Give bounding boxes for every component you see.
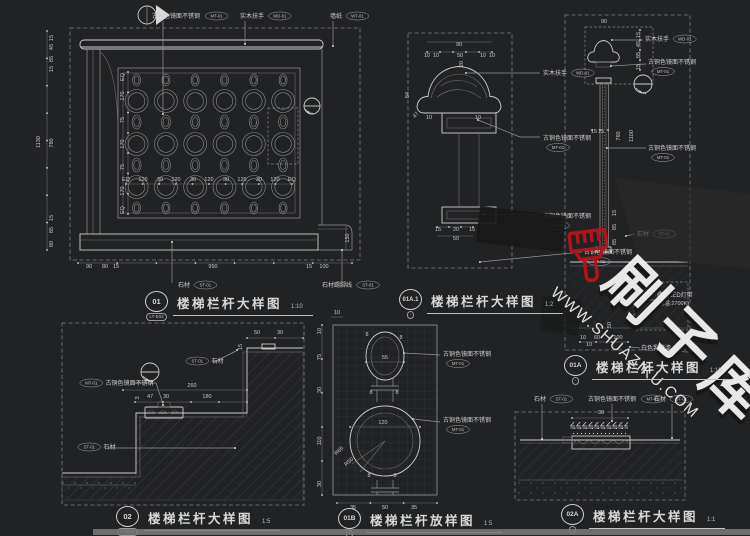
- dim-text: 10: [580, 335, 586, 341]
- material-label: 实木扶手: [240, 12, 264, 20]
- tick: [627, 341, 629, 343]
- title-block-01A1: 01A.1 - 楼梯栏杆大样图 1:2: [399, 289, 563, 319]
- dim-text: 10: [480, 53, 486, 59]
- dim-text: 15: [636, 32, 642, 38]
- tick: [465, 51, 467, 53]
- material-tag-text: MT-01: [452, 427, 465, 432]
- dim-text: 10: [424, 53, 430, 59]
- tick: [452, 51, 454, 53]
- material-tag-text: WT-01: [351, 14, 364, 19]
- dim-text: 85: [49, 56, 55, 62]
- dim-text: 85: [636, 52, 642, 58]
- tick: [365, 361, 367, 363]
- material-tag-text: WD-01: [273, 14, 287, 19]
- dim-text: 10: [334, 310, 340, 316]
- dim-text: 10: [475, 115, 481, 121]
- dim-text: 55: [382, 355, 388, 361]
- detail-marker: [141, 363, 159, 382]
- sheet-code: LT-E02: [146, 313, 166, 321]
- baluster-ornament: [216, 93, 233, 110]
- dim-text: 15: [591, 129, 597, 135]
- drawing-scale: 1:10: [291, 304, 303, 310]
- dim-text: 15: [238, 344, 244, 350]
- dim-text: 30: [317, 481, 323, 487]
- baluster-ornament: [246, 136, 263, 153]
- tick: [46, 194, 48, 196]
- tick: [439, 51, 441, 53]
- baluster-ornament: [187, 93, 204, 110]
- title-block-01: 01 LT-E02 楼梯栏杆大样图 1:10: [145, 291, 313, 321]
- baluster-ornament: [280, 160, 286, 169]
- dim-text: 1100: [629, 130, 635, 142]
- baluster-ornament: [222, 117, 228, 126]
- material-label: 古铜色镜面不锈钢: [106, 379, 154, 387]
- dim-text: 170: [120, 91, 126, 100]
- dim-text: 15: [306, 264, 312, 270]
- tick: [639, 39, 641, 41]
- baluster-ornament: [187, 136, 204, 153]
- baluster-ornament: [281, 204, 286, 212]
- dim-text: 90: [86, 264, 92, 270]
- tick: [134, 401, 136, 403]
- tick: [225, 183, 227, 185]
- dim-text: 30: [157, 177, 163, 183]
- tick: [155, 262, 157, 264]
- baluster-ornament: [158, 93, 175, 110]
- tick: [460, 226, 462, 228]
- tick: [595, 341, 597, 343]
- tick: [351, 262, 353, 264]
- dim-text: 90: [456, 42, 462, 48]
- tick: [46, 85, 48, 87]
- dim-text: 84: [405, 92, 411, 98]
- dim-text: 47: [412, 111, 421, 120]
- baluster-ornament: [275, 136, 292, 153]
- tick: [639, 49, 641, 51]
- tick: [302, 337, 304, 339]
- baluster-ornament: [251, 160, 257, 169]
- baluster-ornament: [251, 76, 256, 84]
- tick: [77, 262, 79, 264]
- tick: [419, 426, 421, 428]
- cad-sheet: 113015458515780158580EQ1707517075170EQEQ…: [0, 0, 750, 536]
- tick: [195, 262, 197, 264]
- dim-text: 75: [120, 164, 126, 170]
- dim-text: 10: [433, 53, 439, 59]
- drawing-title: 楼梯栏杆大样图: [431, 291, 536, 310]
- material-label: 石材踢脚线: [322, 281, 352, 289]
- dim-text: 8: [365, 332, 368, 338]
- tick: [321, 460, 323, 462]
- drawing-scale: 1:5: [484, 521, 492, 527]
- dim-text: 8: [395, 390, 398, 396]
- baluster-ornament: [251, 204, 256, 212]
- tick: [46, 249, 48, 251]
- baluster-ornament: [222, 204, 227, 212]
- dim-text: 30: [190, 177, 196, 183]
- baluster-ornament: [134, 117, 140, 126]
- dim-text: 180: [202, 394, 211, 400]
- tick: [192, 183, 194, 185]
- tick: [336, 502, 338, 504]
- detail-bubble: 02: [116, 506, 139, 527]
- drawing-01-railing-elevation: [47, 5, 360, 283]
- dim-text: 75: [120, 117, 126, 123]
- dim-text: 120: [378, 420, 387, 426]
- dim-text: 75: [317, 354, 323, 360]
- dim-text: 30: [163, 394, 169, 400]
- tick: [122, 389, 124, 391]
- baluster-ornament: [246, 93, 263, 110]
- tick: [46, 140, 48, 142]
- sheet-code: -: [572, 377, 580, 385]
- sheet-code: -: [407, 311, 415, 319]
- material-tag-text: ST-01: [362, 283, 374, 288]
- tick: [175, 183, 177, 185]
- material-tag-text: MT-01: [85, 381, 98, 386]
- dim-text: 20: [459, 61, 465, 67]
- dim-text: 8: [369, 390, 372, 396]
- baluster-ornament: [192, 160, 198, 169]
- material-label: 石材: [212, 357, 224, 365]
- tick: [246, 389, 248, 391]
- material-label: 实木扶手: [543, 69, 567, 77]
- drawing-title: 楼梯栏杆大样图: [177, 293, 282, 312]
- tick: [312, 262, 314, 264]
- dim-text: EQ: [288, 177, 297, 183]
- dim-text: 15: [636, 64, 642, 70]
- tick: [127, 152, 129, 154]
- material-label: 古铜色镜面不锈钢: [152, 12, 200, 20]
- baluster-ornament: [134, 204, 139, 212]
- tick: [274, 337, 276, 339]
- drawing-01B-baluster-loft: [322, 317, 440, 503]
- dim-text: 950: [208, 264, 217, 270]
- dim-text: 10: [426, 115, 432, 121]
- dim-text: 8: [393, 473, 396, 479]
- baluster-ornament: [193, 76, 198, 84]
- tick: [571, 417, 573, 419]
- baluster-ornament: [222, 160, 228, 169]
- tick: [127, 91, 129, 93]
- dim-text: 15: [49, 35, 55, 41]
- dim-text: 45: [636, 41, 642, 47]
- tick: [403, 361, 405, 363]
- material-tag-text: MT-01: [211, 14, 224, 19]
- material-tag-text: MT-01: [657, 155, 670, 160]
- dim-text: 1130: [36, 136, 42, 148]
- dim-text: 100: [319, 264, 328, 270]
- dim-text: 80: [49, 241, 55, 247]
- dim-text: 85: [612, 224, 618, 230]
- dim-text: 15: [49, 66, 55, 72]
- dim-text: 90: [601, 19, 607, 25]
- material-tag-text: ST-01: [556, 397, 568, 402]
- dim-text: 30: [598, 410, 604, 416]
- drawing-canvas: 113015458515780158580EQ1707517075170EQEQ…: [0, 0, 750, 536]
- detail-bubble: 01: [145, 291, 168, 312]
- tick: [639, 29, 641, 31]
- detail-bubble: 01A: [564, 355, 587, 376]
- dim-text: EQ: [120, 72, 126, 81]
- baluster-ornament: [280, 117, 286, 126]
- tick: [246, 401, 248, 403]
- tick: [291, 183, 293, 185]
- material-label: 石材: [104, 443, 116, 451]
- window-edge-band: [93, 529, 750, 535]
- detail-bubble: 02A: [561, 504, 584, 525]
- drawing-02-stair-section: [62, 323, 304, 505]
- dim-text: 760: [616, 131, 622, 140]
- tick: [321, 324, 323, 326]
- dim-text: 85: [612, 239, 618, 245]
- tick: [127, 193, 129, 195]
- tick: [162, 401, 164, 403]
- tick: [579, 341, 581, 343]
- baluster-ornament: [163, 117, 169, 126]
- dim-text: 45: [49, 44, 55, 50]
- tick: [127, 132, 129, 134]
- tick: [208, 183, 210, 185]
- dim-text: 15: [113, 264, 119, 270]
- material-tag-text: WD-01: [678, 37, 692, 42]
- detail-bubble: 01B: [338, 508, 361, 529]
- tick: [142, 183, 144, 185]
- dim-text: 10: [489, 53, 495, 59]
- dim-text: 30: [223, 177, 229, 183]
- dim-text: 50: [254, 330, 260, 336]
- tick: [234, 262, 236, 264]
- tick: [46, 30, 48, 32]
- tick: [127, 71, 129, 73]
- dim-text: 170: [120, 139, 126, 148]
- material-tag-text: ST-01: [192, 359, 204, 364]
- material-tag-text: MT-01: [552, 145, 565, 150]
- dim-text: 30: [317, 387, 323, 393]
- tick: [349, 426, 351, 428]
- baluster-ornament: [275, 93, 292, 110]
- tick: [218, 401, 220, 403]
- drawing-scale: 1:1: [707, 517, 715, 523]
- detail-marker: [304, 98, 320, 114]
- baluster-ornament: [163, 160, 169, 169]
- tick: [403, 502, 405, 504]
- baluster-ornament: [134, 76, 139, 84]
- baluster-ornament: [216, 136, 233, 153]
- tick: [627, 417, 629, 419]
- dim-text: 120: [171, 177, 180, 183]
- drawing-title: 楼梯栏杆大样图: [593, 506, 698, 525]
- dim-text: 120: [270, 177, 279, 183]
- dim-text: 170: [120, 186, 126, 195]
- tick: [46, 222, 48, 224]
- tick: [321, 494, 323, 496]
- dim-text: 10: [586, 342, 592, 348]
- baluster-ornament: [251, 117, 257, 126]
- tick: [127, 213, 129, 215]
- tick: [125, 183, 127, 185]
- tick: [190, 401, 192, 403]
- drawing-scale: 1:5: [262, 519, 270, 525]
- tick: [369, 502, 371, 504]
- dim-text: 15: [612, 210, 618, 216]
- material-label: 古铜色镜面不锈钢: [443, 350, 491, 358]
- tick: [46, 112, 48, 114]
- tick: [607, 129, 609, 131]
- dim-text: 10: [317, 328, 323, 334]
- material-tag-text: MT-01: [452, 361, 465, 366]
- material-label: 古铜色镜面不锈钢: [648, 144, 696, 152]
- baluster-ornament: [163, 204, 168, 212]
- material-label: 石材: [178, 281, 190, 289]
- baluster-ornament: [134, 160, 140, 169]
- material-label: 墙纸: [330, 12, 342, 20]
- dim-text: 50: [457, 53, 463, 59]
- dim-text: 8: [367, 473, 370, 479]
- dim-text: 15: [49, 215, 55, 221]
- dim-text: 120: [138, 177, 147, 183]
- tick: [448, 226, 450, 228]
- drawing-title: 楼梯栏杆大样图: [148, 508, 253, 527]
- dim-text: 30: [256, 177, 262, 183]
- baluster-ornament: [158, 136, 175, 153]
- tick: [158, 183, 160, 185]
- dim-text: EQ: [122, 177, 131, 183]
- tick: [258, 183, 260, 185]
- baluster-ornament: [163, 76, 168, 84]
- dim-text: 20: [453, 227, 459, 233]
- baluster-ornament: [222, 76, 227, 84]
- baluster-ornament: [128, 136, 145, 153]
- drawing-title: 楼梯栏杆大样图: [596, 357, 701, 376]
- tick: [246, 337, 248, 339]
- dim-text: 85: [49, 227, 55, 233]
- tick: [127, 173, 129, 175]
- baluster-ornament: [192, 117, 198, 126]
- dim-text: 260: [187, 383, 196, 389]
- dim-text: 780: [49, 138, 55, 147]
- dim-text: 80: [102, 264, 108, 270]
- drawing-scale: 1:2: [545, 302, 553, 308]
- baluster-ornament: [193, 204, 198, 212]
- material-label: 实木扶手: [645, 35, 669, 43]
- dim-text: 15: [598, 129, 604, 135]
- dim-text: 120: [204, 177, 213, 183]
- material-tag-text: WD-01: [576, 71, 590, 76]
- tick: [639, 59, 641, 61]
- material-label: 古铜色镜面不锈钢: [648, 58, 696, 66]
- dim-text: 3: [135, 396, 141, 399]
- material-tag-text: ST-01: [84, 445, 96, 450]
- tick: [46, 167, 48, 169]
- dim-text: 50: [453, 236, 459, 242]
- dim-text: 8: [399, 335, 402, 341]
- tick: [241, 183, 243, 185]
- drawing-title: 楼梯栏杆放样图: [370, 510, 475, 529]
- dim-text: 15: [435, 227, 441, 233]
- tick: [127, 112, 129, 114]
- material-tag-text: MT-01: [657, 69, 670, 74]
- detail-marker: [634, 75, 652, 94]
- detail-bubble: 01A.1: [399, 289, 422, 310]
- dim-text: 30: [277, 330, 283, 336]
- baluster-ornament: [128, 93, 145, 110]
- tick: [273, 262, 275, 264]
- material-label: 古铜色镜面不锈钢: [543, 134, 591, 142]
- tick: [46, 57, 48, 59]
- tick: [321, 426, 323, 428]
- material-label: 古铜色镜面不锈钢: [443, 416, 491, 424]
- tick: [275, 183, 277, 185]
- dim-text: 150: [345, 233, 351, 242]
- baluster-ornament: [281, 76, 286, 84]
- watermark-smudge: [476, 206, 566, 252]
- material-tag-text: ST-01: [200, 283, 212, 288]
- dim-text: 47: [147, 394, 153, 400]
- dim-text: 120: [237, 177, 246, 183]
- drawing-scale: 1:10: [710, 368, 722, 374]
- tick: [436, 502, 438, 504]
- material-label: 石材: [534, 395, 546, 403]
- drawing-02A-anchor-detail: [515, 404, 685, 500]
- dim-text: 15: [469, 227, 475, 233]
- dim-text: 110: [317, 437, 323, 446]
- title-block-01A: 01A - 楼梯栏杆大样图 1:10: [564, 355, 732, 385]
- material-label: 古铜色镜面不锈钢: [588, 395, 636, 403]
- dim-text: EQ: [120, 205, 126, 214]
